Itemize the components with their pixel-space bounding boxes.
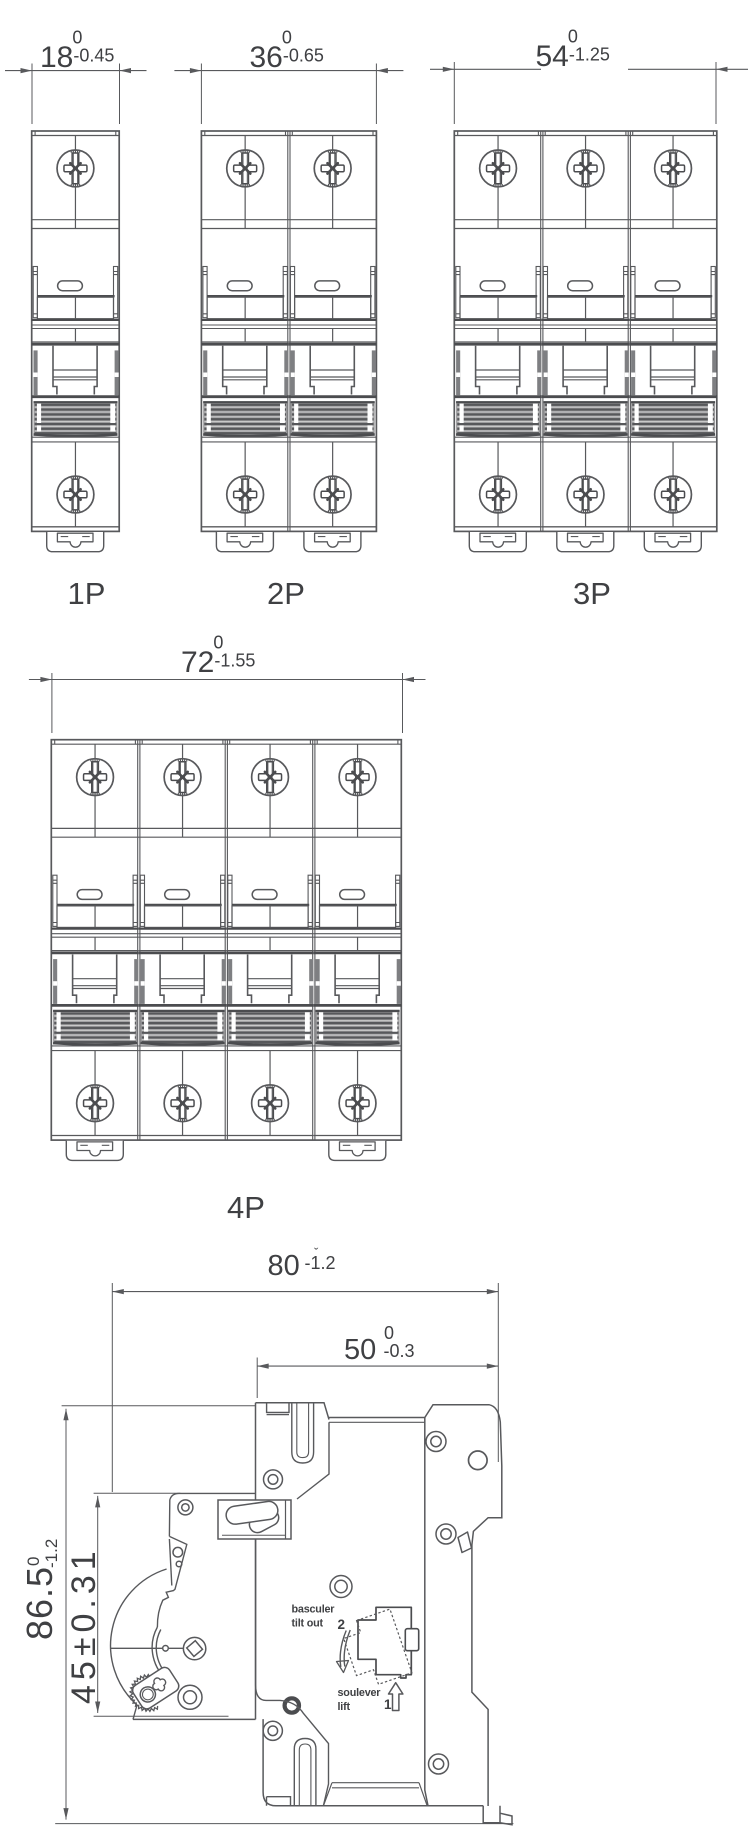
svg-text:3P: 3P <box>573 576 611 611</box>
svg-text:0: 0 <box>384 1323 394 1343</box>
svg-text:tilt out: tilt out <box>292 1618 324 1630</box>
svg-text:2P: 2P <box>267 576 305 611</box>
svg-text:4P: 4P <box>227 1190 265 1225</box>
svg-text:1: 1 <box>384 1697 392 1712</box>
svg-text:0: 0 <box>568 27 578 47</box>
svg-text:54: 54 <box>536 40 569 73</box>
svg-text:0: 0 <box>72 28 82 48</box>
svg-text:86.5: 86.5 <box>19 1566 60 1640</box>
svg-text:0: 0 <box>282 28 292 48</box>
svg-text:-1.25: -1.25 <box>569 45 610 65</box>
svg-text:-1.2: -1.2 <box>305 1253 336 1273</box>
svg-text:soulever: soulever <box>338 1687 382 1699</box>
svg-text:18: 18 <box>40 41 73 74</box>
svg-text:80: 80 <box>268 1250 300 1282</box>
svg-text:ˇ: ˇ <box>314 1245 319 1260</box>
svg-text:50: 50 <box>344 1334 376 1366</box>
svg-text:lift: lift <box>338 1701 351 1713</box>
svg-text:-1.55: -1.55 <box>214 651 255 671</box>
svg-text:2: 2 <box>338 1617 346 1632</box>
svg-text:72: 72 <box>181 646 214 679</box>
svg-text:-0.65: -0.65 <box>283 46 324 66</box>
svg-text:basculer: basculer <box>292 1604 336 1616</box>
svg-text:-0.45: -0.45 <box>73 46 114 66</box>
svg-text:45±0.31: 45±0.31 <box>65 1546 103 1704</box>
svg-text:36: 36 <box>250 41 283 74</box>
svg-text:1P: 1P <box>68 576 106 611</box>
svg-text:0: 0 <box>213 633 223 653</box>
svg-text:0: 0 <box>24 1557 43 1566</box>
svg-text:-0.3: -0.3 <box>384 1341 415 1361</box>
svg-text:-1.2: -1.2 <box>42 1539 61 1568</box>
